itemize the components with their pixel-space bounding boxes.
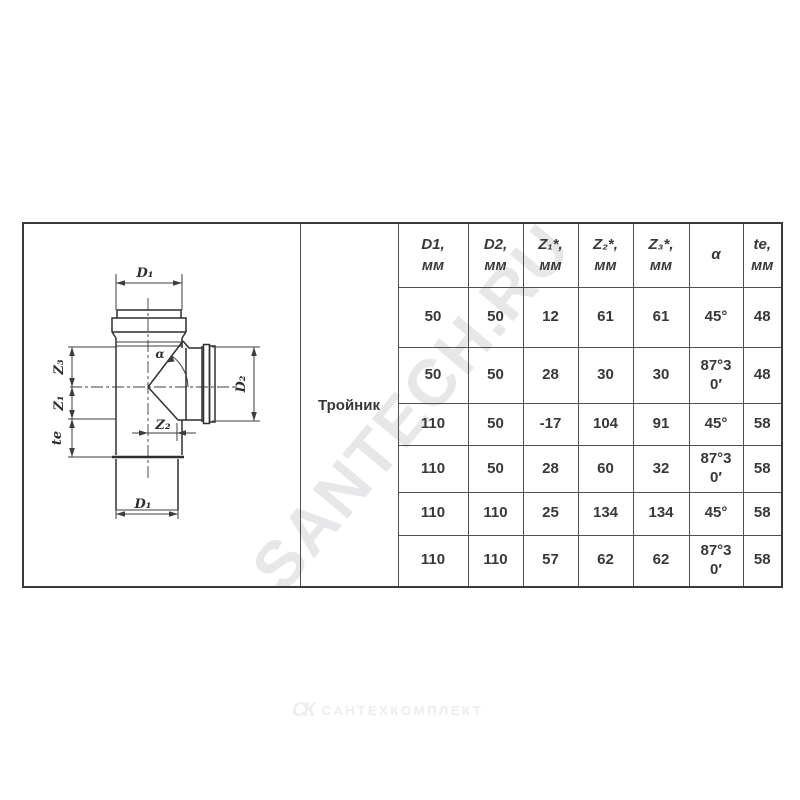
cell-z1-row1: 12 xyxy=(523,287,578,347)
cell-alpha-row6: 87°30′ xyxy=(689,535,743,587)
centerlines xyxy=(70,298,236,478)
cell-d2-row4: 50 xyxy=(468,446,523,493)
column-header-te: te,мм xyxy=(743,223,782,287)
column-header-d1: D1,мм xyxy=(398,223,468,287)
dimension-left-chain: Z₃ Z₁ te xyxy=(50,347,116,457)
cell-z1-row3: -17 xyxy=(523,404,578,446)
page: SANTECH.RU xyxy=(0,0,800,800)
spec-table: α D₁ xyxy=(22,222,783,588)
cell-d2-row3: 50 xyxy=(468,404,523,446)
cell-d2-row5: 110 xyxy=(468,492,523,535)
pipe-outline xyxy=(112,310,186,510)
sk-logo-icon: СК xyxy=(290,700,314,720)
dim-label-d1-top: D₁ xyxy=(136,266,154,281)
cell-z1-row6: 57 xyxy=(523,535,578,587)
cell-d1-row4: 110 xyxy=(398,446,468,493)
cell-z1-row5: 25 xyxy=(523,492,578,535)
cell-d1-row3: 110 xyxy=(398,404,468,446)
cell-alpha-row1: 45° xyxy=(689,287,743,347)
product-name-cell: Тройник xyxy=(300,223,398,587)
dim-label-z2: Z₂ xyxy=(154,418,170,433)
dimension-z2: Z₂ xyxy=(132,418,196,441)
cell-te-row5: 58 xyxy=(743,492,782,535)
cell-te-row2: 48 xyxy=(743,347,782,404)
cell-z3-row1: 61 xyxy=(633,287,689,347)
dimension-d2: D₂ xyxy=(212,347,260,421)
cell-z3-row4: 32 xyxy=(633,446,689,493)
cell-te-row1: 48 xyxy=(743,287,782,347)
cell-z2-row6: 62 xyxy=(578,535,633,587)
tee-fitting-drawing: α D₁ xyxy=(26,226,301,580)
cell-z2-row5: 134 xyxy=(578,492,633,535)
cell-d2-row6: 110 xyxy=(468,535,523,587)
dimension-alpha: α xyxy=(155,347,188,387)
cell-alpha-row3: 45° xyxy=(689,404,743,446)
cell-alpha-row2: 87°30′ xyxy=(689,347,743,404)
cell-alpha-row5: 45° xyxy=(689,492,743,535)
cell-d2-row2: 50 xyxy=(468,347,523,404)
product-name: Тройник xyxy=(318,397,380,414)
column-header-alpha: α xyxy=(689,223,743,287)
dimension-d1-bottom: D₁ xyxy=(116,497,178,519)
cell-z3-row3: 91 xyxy=(633,404,689,446)
cell-d2-row1: 50 xyxy=(468,287,523,347)
cell-z2-row2: 30 xyxy=(578,347,633,404)
dim-label-te: te xyxy=(50,431,65,445)
cell-te-row4: 58 xyxy=(743,446,782,493)
footer-logo-text: САНТЕХКОМПЛЕКТ xyxy=(322,704,484,717)
cell-te-row3: 58 xyxy=(743,404,782,446)
column-header-z2: Z₂*,мм xyxy=(578,223,633,287)
dim-label-z3: Z₃ xyxy=(52,359,67,375)
column-header-z1: Z₁*,мм xyxy=(523,223,578,287)
cell-z3-row6: 62 xyxy=(633,535,689,587)
cell-d1-row2: 50 xyxy=(398,347,468,404)
cell-z3-row5: 134 xyxy=(633,492,689,535)
dimension-d1-top: D₁ xyxy=(116,266,182,310)
dim-label-d2: D₂ xyxy=(234,375,249,393)
cell-z2-row4: 60 xyxy=(578,446,633,493)
cell-z2-row3: 104 xyxy=(578,404,633,446)
cell-z1-row2: 28 xyxy=(523,347,578,404)
cell-z1-row4: 28 xyxy=(523,446,578,493)
dim-label-d1-bottom: D₁ xyxy=(134,497,152,512)
dim-label-z1: Z₁ xyxy=(52,395,67,411)
column-header-z3: Z₃*,мм xyxy=(633,223,689,287)
cell-d1-row6: 110 xyxy=(398,535,468,587)
cell-alpha-row4: 87°30′ xyxy=(689,446,743,493)
cell-d1-row1: 50 xyxy=(398,287,468,347)
dim-label-alpha: α xyxy=(155,347,164,361)
column-header-d2: D2,мм xyxy=(468,223,523,287)
cell-d1-row5: 110 xyxy=(398,492,468,535)
technical-drawing-cell: α D₁ xyxy=(23,223,300,587)
cell-z2-row1: 61 xyxy=(578,287,633,347)
cell-z3-row2: 30 xyxy=(633,347,689,404)
cell-te-row6: 58 xyxy=(743,535,782,587)
footer-logo: СК САНТЕХКОМПЛЕКТ xyxy=(292,700,483,720)
